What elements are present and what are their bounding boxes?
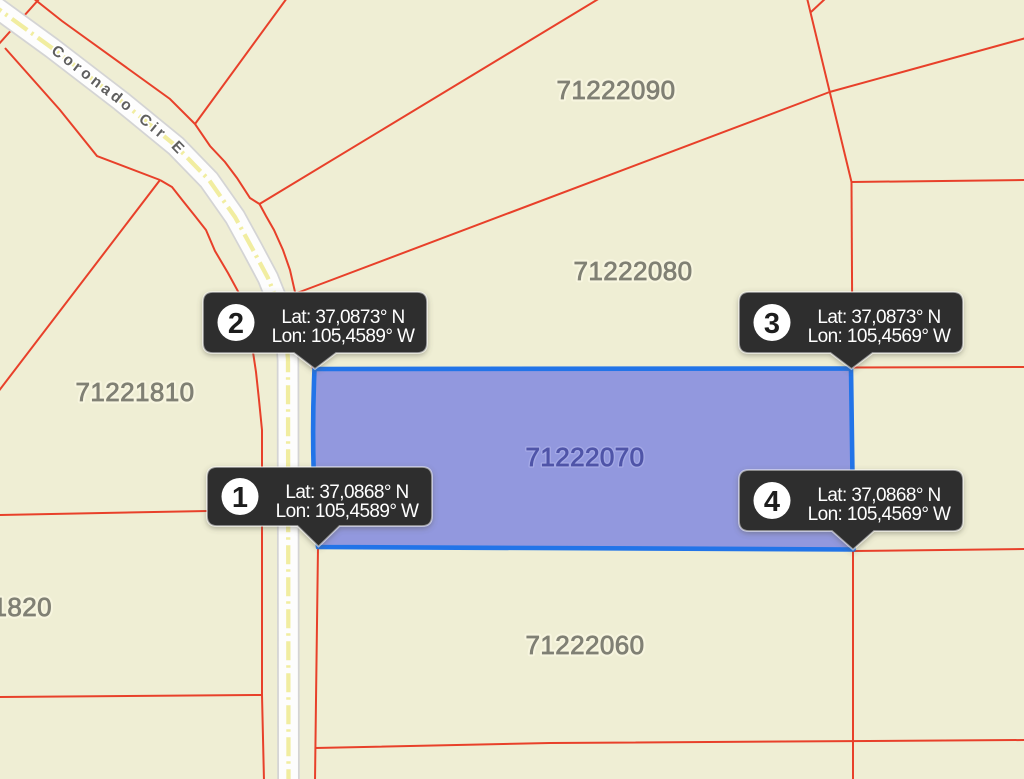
svg-text:71222090: 71222090 (557, 75, 676, 105)
svg-text:Lat: 37,0873° N: Lat: 37,0873° N (817, 307, 940, 328)
svg-text:3: 3 (764, 308, 780, 340)
svg-text:Lat: 37,0873° N: Lat: 37,0873° N (281, 307, 404, 328)
svg-text:71221820: 71221820 (0, 592, 52, 622)
svg-text:71222080: 71222080 (574, 256, 693, 286)
svg-text:71222060: 71222060 (526, 630, 645, 660)
svg-text:Lon: 105,4569° W: Lon: 105,4569° W (808, 504, 951, 525)
svg-text:71221810: 71221810 (76, 377, 195, 407)
svg-text:Lon: 105,4569° W: Lon: 105,4569° W (808, 326, 951, 347)
svg-text:2: 2 (228, 308, 244, 340)
svg-text:Lon: 105,4589° W: Lon: 105,4589° W (276, 501, 419, 522)
svg-text:71222070: 71222070 (526, 442, 645, 472)
svg-text:1: 1 (232, 482, 248, 514)
svg-text:4: 4 (764, 486, 780, 518)
svg-text:Lat: 37,0868° N: Lat: 37,0868° N (817, 485, 940, 506)
svg-text:Lat: 37,0868° N: Lat: 37,0868° N (285, 482, 408, 503)
svg-text:Lon: 105,4589° W: Lon: 105,4589° W (272, 326, 415, 347)
